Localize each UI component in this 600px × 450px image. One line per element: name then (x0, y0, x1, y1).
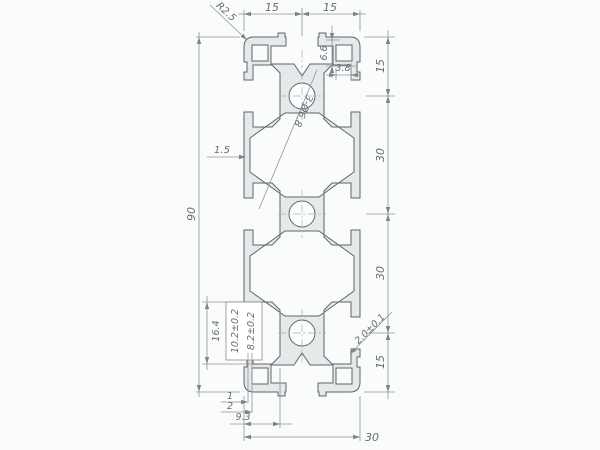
dim-right-seg3: 30 (374, 266, 387, 280)
dim-right-seg1: 15 (374, 59, 387, 73)
dim-slot-stack: 16.4 10.2±0.2 8.2±0.2 (202, 296, 262, 370)
dim-right-seg4: 15 (374, 355, 387, 369)
dim-slot-opening-width: 8.2±0.2 (246, 312, 257, 350)
dim-slot-step-label: 3.8 (335, 63, 350, 74)
technical-drawing-canvas: 15 15 R2.5 6.6 3.8 15 30 30 15 90 1.5 (0, 0, 600, 450)
profile-drawing: 15 15 R2.5 6.6 3.8 15 30 30 15 90 1.5 (0, 0, 600, 450)
dim-lip-2: 2 (227, 401, 233, 412)
dim-right-seg2: 30 (374, 148, 387, 162)
dim-overall-width-label: 30 (365, 431, 379, 444)
dim-slot-depth-label: 6.6 (319, 45, 330, 60)
dim-slot-inner-width: 16.4 (211, 320, 222, 341)
dim-wall-thickness-label: 1.5 (214, 145, 230, 156)
dim-top-width-left: 15 (265, 1, 279, 14)
dim-overall-width: 30 (244, 431, 379, 444)
dim-top-width-right: 15 (323, 1, 337, 14)
dim-corner-radius: R2.5 (210, 0, 247, 40)
dim-right-chain: 15 30 30 15 (364, 30, 395, 399)
dim-slot-depth-bottom: 9.3 (235, 412, 250, 423)
dim-top-widths: 15 15 (238, 1, 366, 36)
dim-slot-undercut-width: 10.2±0.2 (230, 309, 241, 353)
dim-overall-height-label: 90 (185, 207, 198, 221)
dim-wall-thickness: 1.5 (207, 145, 246, 159)
